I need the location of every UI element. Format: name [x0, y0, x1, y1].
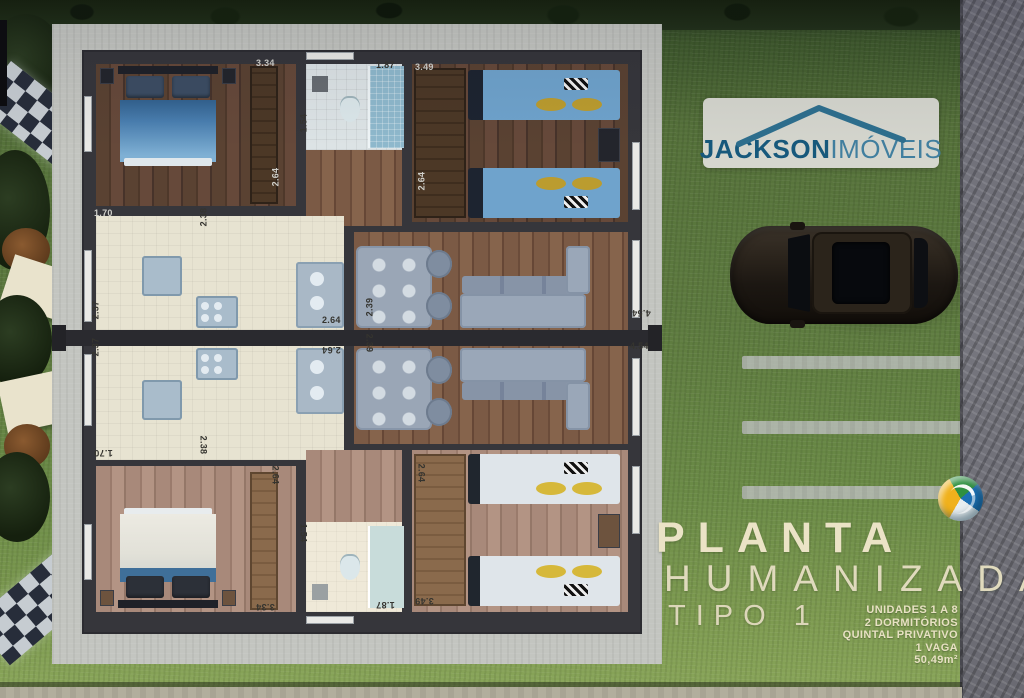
spec-item: QUINTAL PRIVATIVO	[700, 629, 958, 642]
car-sunroof	[832, 242, 890, 304]
dimension-label: 3.49	[415, 62, 434, 72]
parked-car	[730, 224, 960, 328]
brand-logo-card: JACKSONIMÓVEIS	[703, 98, 939, 168]
dimension-label: 2.37	[90, 301, 100, 320]
dimension-label: 2.39	[364, 334, 374, 353]
plan-title: PLANTA	[656, 514, 905, 563]
dimension-label: 2.64	[416, 172, 426, 191]
parking-stripe	[742, 421, 966, 434]
sidewalk-bottom	[0, 687, 962, 698]
dimension-label: 2.64	[322, 345, 341, 355]
car-rear-window	[914, 238, 928, 308]
dimension-label: 3.34	[256, 58, 275, 68]
dimension-label: 3.34	[256, 602, 275, 612]
car-roof	[812, 232, 912, 314]
dimension-label: 2.39	[364, 298, 374, 317]
roof-icon	[731, 102, 911, 148]
spec-item: 50,49m²	[700, 654, 958, 667]
dimension-label: 2.38	[198, 436, 208, 455]
spec-list: UNIDADES 1 A 82 DORMITÓRIOSQUINTAL PRIVA…	[700, 604, 958, 667]
plan-subtitle: HUMANIZADA	[664, 558, 1024, 600]
car-mirror	[790, 320, 805, 328]
dimension-label: 2.64	[270, 168, 280, 187]
photo-edge-artifact	[0, 20, 7, 106]
car-mirror	[790, 222, 805, 230]
parking-stripe	[742, 356, 966, 369]
spec-item: UNIDADES 1 A 8	[700, 604, 958, 617]
dimension-label: 4.54	[630, 341, 649, 351]
dimension-label: 2.64	[322, 315, 341, 325]
dimension-label: 1.54	[298, 524, 308, 543]
dimension-label: 1.87	[376, 600, 395, 610]
dimension-label: 2.37	[90, 338, 100, 357]
dimension-label: 2.64	[270, 466, 280, 485]
spec-item: 1 VAGA	[700, 642, 958, 655]
dimension-label: 1.54	[298, 114, 308, 133]
dimension-label: 2.38	[198, 208, 208, 227]
parking-stripe	[742, 486, 966, 499]
dimension-label: 2.64	[416, 464, 426, 483]
dimension-label: 4.54	[632, 308, 651, 318]
dimension-label: 1.87	[376, 60, 395, 70]
dimension-label: 3.49	[415, 596, 434, 606]
floor-plan-marketing-image: 3.341.873.491.542.642.641.702.382.372.64…	[0, 0, 1024, 698]
development-logo-icon	[938, 476, 983, 521]
spec-item: 2 DORMITÓRIOS	[700, 617, 958, 630]
dimension-label: 1.70	[94, 208, 113, 218]
car-windshield	[788, 234, 810, 312]
dimension-label: 1.70	[94, 448, 113, 458]
